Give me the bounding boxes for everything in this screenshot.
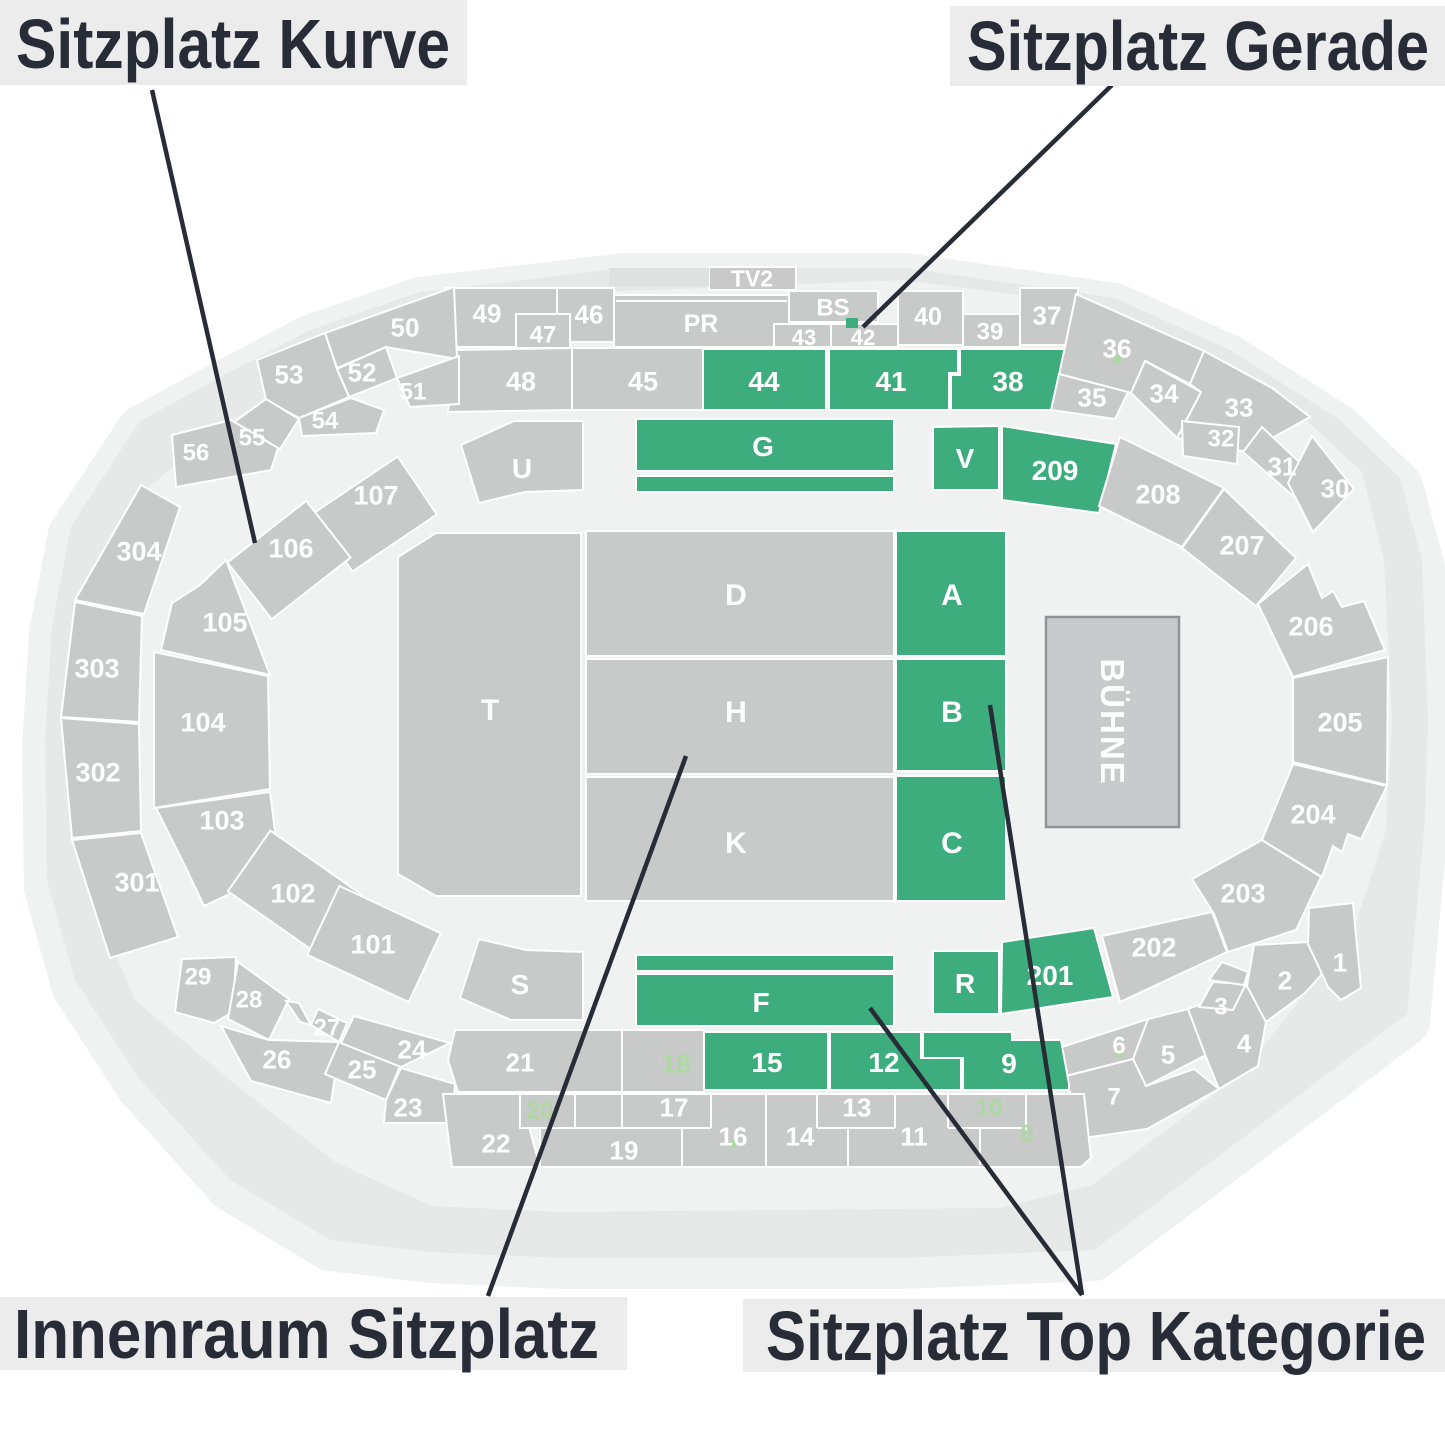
svg-text:V: V [956,443,975,474]
svg-text:Sitzplatz Gerade: Sitzplatz Gerade [967,7,1429,85]
svg-text:4: 4 [1237,1028,1252,1058]
svg-text:6: 6 [1112,1033,1125,1060]
svg-text:22: 22 [482,1128,511,1158]
svg-text:17: 17 [660,1092,689,1122]
svg-text:G: G [752,431,774,462]
svg-text:209: 209 [1032,455,1079,486]
svg-text:45: 45 [628,367,658,397]
svg-text:38: 38 [992,366,1023,397]
svg-text:PR: PR [684,310,719,338]
svg-text:44: 44 [748,366,780,397]
svg-text:49: 49 [473,298,502,328]
svg-text:107: 107 [353,481,398,511]
svg-text:206: 206 [1288,612,1333,642]
svg-text:20: 20 [527,1098,554,1125]
svg-text:27: 27 [314,1015,341,1042]
svg-text:9: 9 [1001,1048,1017,1079]
svg-text:35: 35 [1078,382,1107,412]
svg-text:D: D [725,579,747,612]
svg-text:33: 33 [1225,392,1254,422]
svg-text:Innenraum Sitzplatz: Innenraum Sitzplatz [14,1295,599,1373]
svg-text:50: 50 [391,312,420,342]
svg-text:303: 303 [74,654,119,684]
svg-text:S: S [511,969,530,1000]
svg-text:204: 204 [1290,800,1335,830]
svg-text:24: 24 [398,1034,427,1064]
svg-text:26: 26 [263,1044,292,1074]
svg-text:101: 101 [350,930,395,960]
svg-text:48: 48 [506,367,536,397]
svg-text:15: 15 [751,1047,782,1078]
svg-text:43: 43 [792,325,816,350]
svg-text:3: 3 [1214,994,1227,1021]
svg-text:5: 5 [1161,1039,1175,1069]
svg-text:302: 302 [75,758,120,788]
svg-text:104: 104 [180,708,225,738]
svg-text:BÜHNE: BÜHNE [1094,658,1131,785]
svg-text:34: 34 [1150,378,1179,408]
svg-text:30: 30 [1321,473,1350,503]
svg-text:28: 28 [236,987,263,1014]
svg-text:H: H [725,696,747,729]
svg-text:16: 16 [719,1121,748,1151]
svg-text:Sitzplatz Top Kategorie: Sitzplatz Top Kategorie [766,1297,1426,1375]
svg-text:23: 23 [394,1092,423,1122]
svg-text:K: K [725,827,747,860]
svg-text:47: 47 [530,322,557,349]
svg-text:Sitzplatz Kurve: Sitzplatz Kurve [16,5,450,83]
svg-text:U: U [512,453,532,484]
svg-text:T: T [481,694,499,727]
svg-text:106: 106 [268,534,313,564]
svg-text:105: 105 [202,608,247,638]
svg-text:208: 208 [1135,480,1180,510]
svg-text:52: 52 [348,357,377,387]
svg-text:BS: BS [816,295,849,322]
svg-text:301: 301 [114,868,159,898]
svg-text:10: 10 [976,1095,1003,1122]
svg-text:207: 207 [1219,531,1264,561]
svg-text:1: 1 [1333,947,1347,977]
svg-text:TV2: TV2 [731,265,773,291]
svg-text:32: 32 [1208,426,1235,453]
svg-text:13: 13 [843,1092,872,1122]
svg-text:25: 25 [348,1054,377,1084]
svg-text:203: 203 [1220,879,1265,909]
svg-text:202: 202 [1131,933,1176,963]
svg-text:40: 40 [914,303,942,331]
svg-text:56: 56 [183,440,210,467]
svg-text:19: 19 [610,1135,639,1165]
svg-text:42: 42 [851,325,875,350]
svg-text:18: 18 [662,1048,691,1078]
svg-text:51: 51 [400,379,427,406]
svg-text:102: 102 [270,879,315,909]
svg-text:A: A [941,579,963,612]
svg-text:46: 46 [575,299,604,329]
svg-text:C: C [941,827,963,860]
svg-text:11: 11 [900,1121,928,1151]
svg-text:F: F [752,987,769,1018]
svg-text:304: 304 [116,537,161,567]
svg-text:39: 39 [977,319,1004,346]
svg-text:7: 7 [1107,1084,1120,1111]
svg-text:R: R [955,968,975,999]
svg-text:55: 55 [239,425,266,452]
svg-text:103: 103 [199,806,244,836]
svg-text:21: 21 [506,1047,535,1077]
svg-text:2: 2 [1278,965,1292,995]
svg-text:8: 8 [1020,1121,1033,1148]
svg-text:54: 54 [312,408,339,435]
svg-text:37: 37 [1033,300,1062,330]
svg-text:36: 36 [1103,333,1132,363]
svg-text:12: 12 [868,1047,899,1078]
svg-text:205: 205 [1317,708,1362,738]
svg-text:31: 31 [1268,451,1297,481]
svg-text:B: B [941,696,963,729]
svg-text:29: 29 [185,964,212,991]
svg-text:41: 41 [875,366,906,397]
svg-text:53: 53 [275,359,304,389]
svg-text:14: 14 [786,1121,815,1151]
